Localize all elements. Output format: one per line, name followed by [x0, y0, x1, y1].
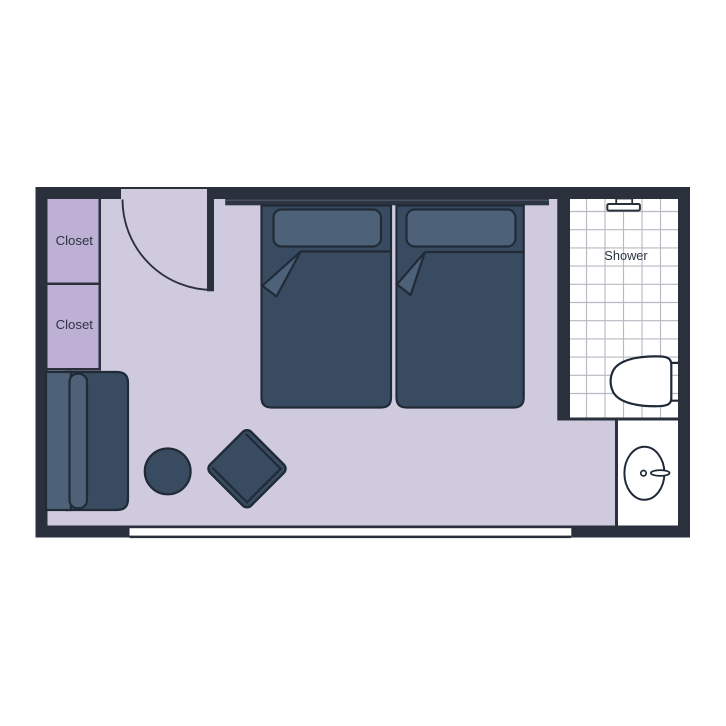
- svg-text:Closet: Closet: [56, 233, 94, 248]
- svg-text:Closet: Closet: [56, 317, 94, 332]
- svg-text:Shower: Shower: [604, 248, 648, 263]
